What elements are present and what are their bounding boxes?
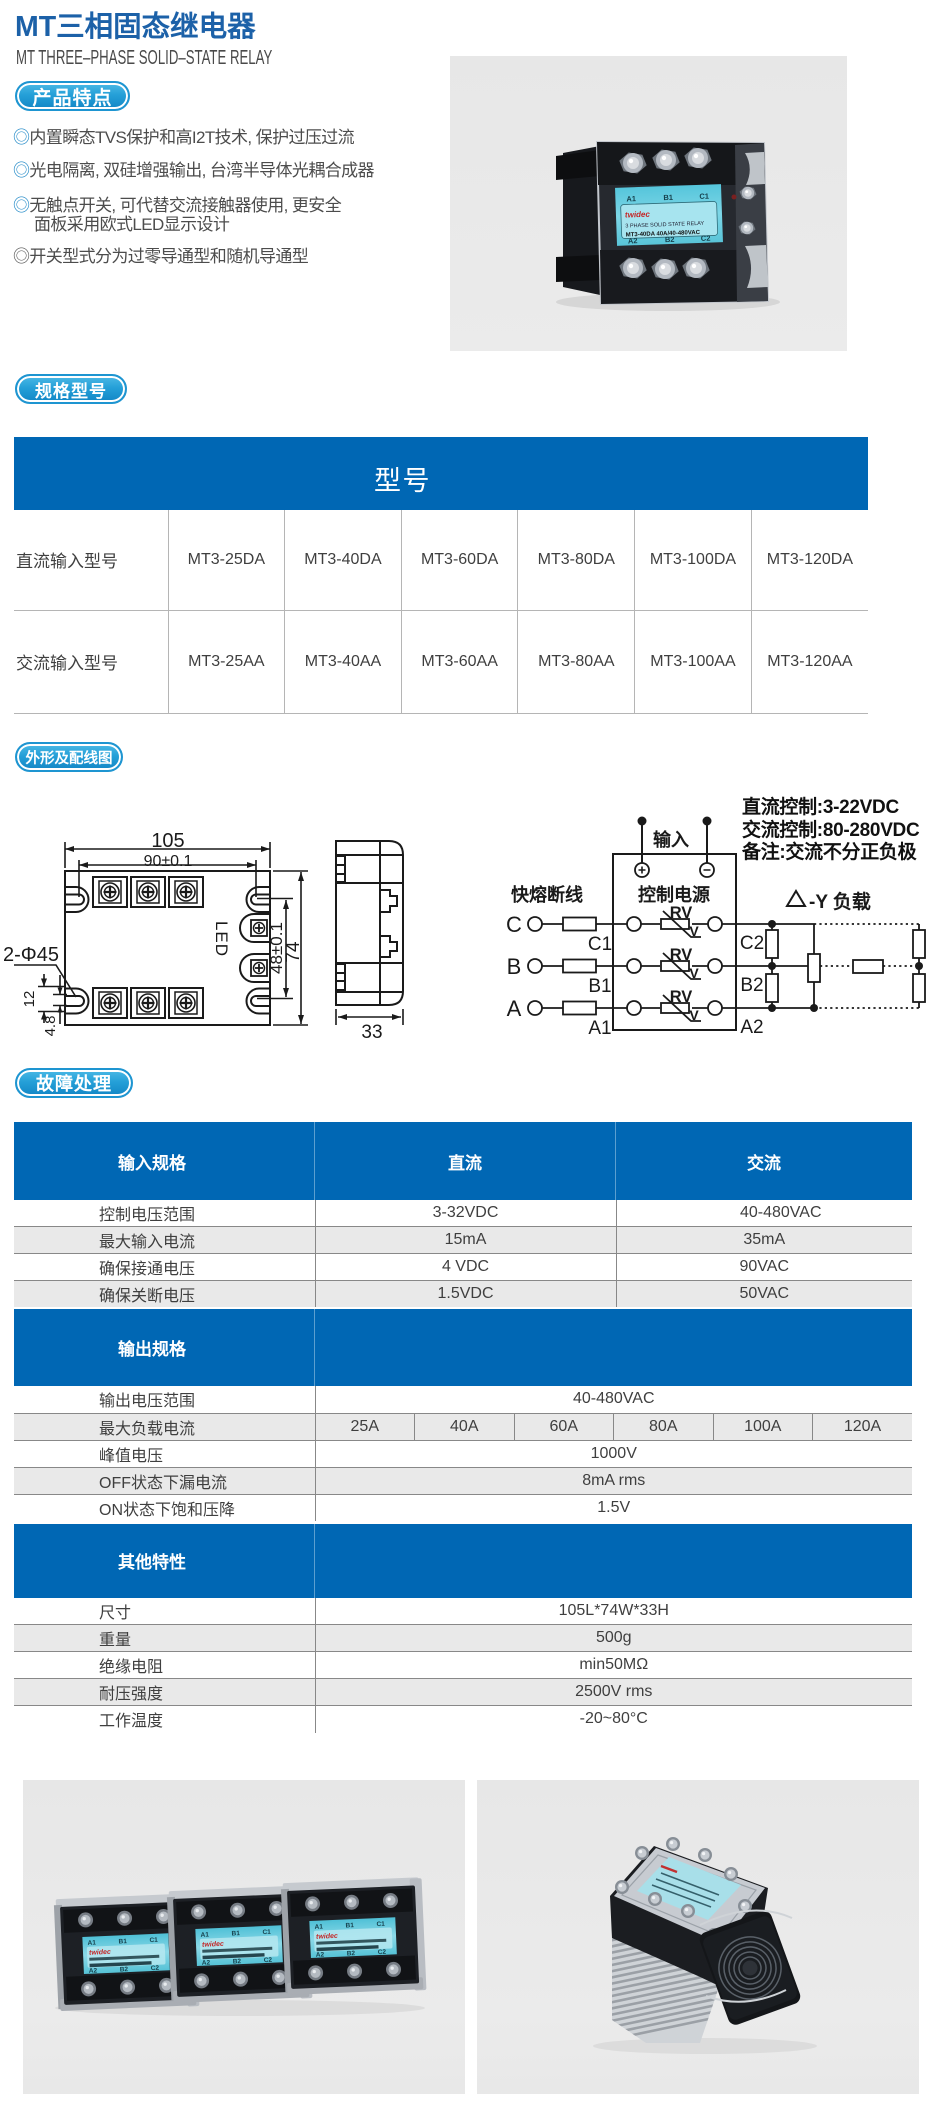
svg-text:C2: C2 [740,933,764,954]
svg-text:V: V [689,923,699,939]
svg-text:A2: A2 [89,1967,98,1974]
svg-text:C: C [506,912,522,937]
svg-text:C2: C2 [378,1949,387,1956]
svg-text:V: V [689,965,699,981]
svg-text:C1: C1 [262,1929,271,1936]
svg-text:twidec: twidec [316,1933,338,1941]
svg-text:V: V [689,1007,699,1023]
svg-text:RV: RV [670,946,693,964]
svg-text:90±0.1: 90±0.1 [144,853,193,870]
svg-text:C1: C1 [376,1921,385,1928]
svg-text:A1: A1 [314,1923,323,1930]
svg-text:B2: B2 [740,975,763,996]
svg-text:快熔断线: 快熔断线 [511,884,583,905]
svg-text:A1: A1 [626,194,636,203]
svg-text:A2: A2 [628,236,638,245]
svg-text:B1: B1 [588,976,611,997]
svg-text:B1: B1 [118,1938,127,1945]
svg-text:输入: 输入 [653,829,689,850]
svg-text:B2: B2 [347,1950,356,1957]
svg-text:C1: C1 [588,934,612,955]
svg-text:C1: C1 [149,1937,158,1944]
svg-text:33: 33 [361,1022,382,1043]
svg-text:A2: A2 [316,1951,325,1958]
svg-text:A1: A1 [588,1018,611,1039]
svg-text:C2: C2 [264,1957,273,1964]
svg-text:2-Φ45: 2-Φ45 [3,944,59,966]
svg-text:C2: C2 [151,1965,160,1972]
svg-text:B1: B1 [345,1922,354,1929]
svg-text:A1: A1 [87,1939,96,1946]
svg-text:B2: B2 [120,1966,129,1973]
svg-text:C1: C1 [699,192,709,201]
svg-text:B1: B1 [231,1930,240,1937]
svg-text:twidec: twidec [625,210,651,220]
svg-text:LED: LED [212,921,231,957]
svg-text:B1: B1 [663,193,673,202]
svg-text:C2: C2 [701,234,711,243]
svg-text:twidec: twidec [202,1941,224,1949]
svg-text:-Y 负载: -Y 负载 [809,890,871,913]
svg-text:A2: A2 [740,1017,763,1038]
svg-text:RV: RV [670,904,693,922]
svg-text:B2: B2 [665,235,675,244]
svg-text:备注:交流不分正负极: 备注:交流不分正负极 [741,840,918,863]
svg-text:交流控制:80-280VDC: 交流控制:80-280VDC [742,818,920,841]
svg-text:105: 105 [151,830,184,852]
svg-text:控制电源: 控制电源 [638,884,710,905]
svg-text:A: A [507,996,522,1021]
svg-text:直流控制:3-22VDC: 直流控制:3-22VDC [742,795,899,818]
svg-text:RV: RV [670,988,693,1006]
svg-text:twidec: twidec [89,1949,111,1957]
svg-text:74: 74 [283,941,304,963]
svg-text:12: 12 [21,991,38,1008]
svg-text:A1: A1 [200,1931,209,1938]
svg-text:4.8: 4.8 [42,1016,59,1037]
svg-text:B: B [507,954,522,979]
svg-text:B2: B2 [233,1958,242,1965]
svg-text:A2: A2 [202,1959,211,1966]
